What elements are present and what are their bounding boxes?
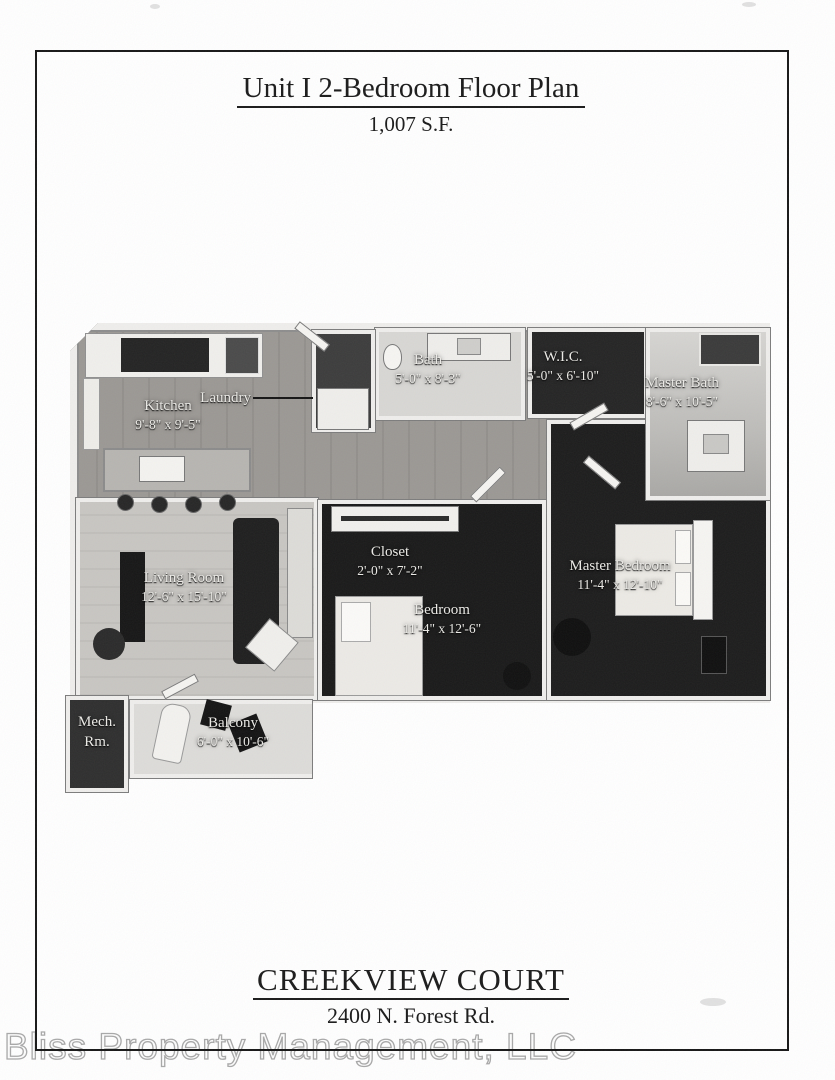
stool-icon bbox=[185, 496, 202, 513]
room-label-master-bath: Master Bath 8'-6" x 10'-5" bbox=[645, 373, 719, 411]
washer-dryer-icon bbox=[317, 388, 369, 430]
pillow-icon bbox=[675, 572, 691, 606]
tub-icon bbox=[699, 333, 761, 366]
page-title: Unit I 2-Bedroom Floor Plan bbox=[35, 72, 787, 105]
range-icon bbox=[121, 338, 209, 372]
room-label-master-bedroom: Master Bedroom 11'-4" x 12'-10" bbox=[569, 556, 670, 594]
room-label-balcony: Balcony 6'-0" x 10'-6" bbox=[197, 713, 269, 751]
room-label-mech-room: Mech. Rm. bbox=[75, 712, 119, 753]
pillow-icon bbox=[341, 602, 371, 642]
property-name: CREEKVIEW COURT bbox=[35, 962, 787, 998]
chair-icon bbox=[553, 618, 591, 656]
laundry-leader-line bbox=[253, 397, 313, 399]
room-label-living-room: Living Room 12'-6" x 15'-10" bbox=[141, 568, 227, 606]
plant-icon bbox=[503, 662, 531, 690]
stool-icon bbox=[117, 494, 134, 511]
sink-icon bbox=[139, 456, 185, 482]
kitchen-counter bbox=[83, 378, 100, 450]
square-footage: 1,007 S.F. bbox=[35, 112, 787, 137]
pillow-icon bbox=[675, 530, 691, 564]
floor-plan-page: Unit I 2-Bedroom Floor Plan 1,007 S.F. bbox=[0, 0, 835, 1080]
sink-icon bbox=[703, 434, 729, 454]
watermark-text: Bliss Property Management, LLC bbox=[4, 1026, 577, 1068]
closet-door-slit bbox=[341, 516, 449, 521]
stool-icon bbox=[151, 496, 168, 513]
stool-icon bbox=[219, 494, 236, 511]
room-label-closet: Closet 2'-0" x 7'-2" bbox=[357, 542, 422, 580]
room-label-wic: W.I.C. 5'-0" x 6'-10" bbox=[527, 347, 599, 385]
room-label-bedroom: Bedroom 11'-4" x 12'-6" bbox=[403, 600, 481, 638]
dresser-icon bbox=[701, 636, 727, 674]
room-label-bath: Bath 5'-0" x 8'-3" bbox=[395, 350, 460, 388]
shelf-icon bbox=[287, 508, 313, 638]
scan-smudge bbox=[150, 4, 160, 9]
room-label-laundry: Laundry bbox=[183, 388, 251, 408]
floor-plan: Kitchen 9'-8" x 9'-5" Laundry Bath 5'-0"… bbox=[65, 320, 777, 795]
plant-icon bbox=[93, 628, 125, 660]
headboard-icon bbox=[693, 520, 713, 620]
fridge-icon bbox=[225, 337, 259, 374]
scan-smudge bbox=[742, 2, 756, 7]
